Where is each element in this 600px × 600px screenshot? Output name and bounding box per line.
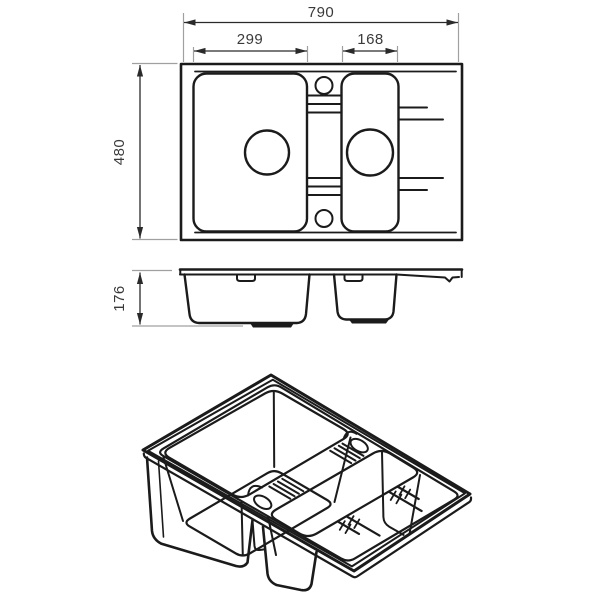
arrow-left-icon: [343, 48, 355, 54]
drawing-canvas: 790 299 168 480 176: [0, 0, 600, 600]
iso-divider-grooves: [269, 444, 363, 499]
tap-hole-back: [316, 77, 333, 94]
iso-drainboard-groove-ticks: [340, 486, 410, 533]
drainboard-grooves: [399, 108, 444, 191]
dim-right-bowl-value: 168: [357, 31, 384, 48]
side-right-bowl-drain-bump: [349, 320, 389, 324]
side-left-bowl-drain-bump: [250, 323, 294, 328]
side-right-bowl: [334, 275, 397, 320]
side-drainboard-edge: [397, 275, 460, 282]
dim-overall-length: 790: [184, 4, 459, 62]
arrow-up-icon: [137, 273, 143, 285]
top-view: [181, 64, 462, 240]
dim-overall-length-value: 790: [308, 4, 335, 21]
arrow-down-icon: [137, 313, 143, 325]
arrow-left-icon: [184, 19, 196, 25]
isometric-view: [143, 375, 471, 590]
iso-big-bowl-shell-edge: [159, 461, 164, 537]
arrow-up-icon: [137, 65, 143, 77]
side-view: [180, 270, 462, 328]
dim-overall-width-value: 480: [111, 139, 128, 166]
dim-depth: 176: [111, 271, 243, 327]
dim-overall-width: 480: [111, 64, 178, 240]
right-bowl-outline: [342, 74, 399, 232]
dim-left-bowl-length: 299: [194, 31, 308, 62]
arrow-right-icon: [447, 19, 459, 25]
arrow-right-icon: [386, 48, 398, 54]
sink-technical-drawing: 790 299 168 480 176: [0, 0, 600, 600]
dim-right-bowl-length: 168: [343, 31, 398, 62]
dim-overall-width-extensions: [132, 64, 178, 240]
top-view-outline: [181, 64, 462, 240]
arrow-right-icon: [296, 48, 308, 54]
arrow-left-icon: [194, 48, 206, 54]
divider-grooves: [308, 96, 342, 196]
tap-hole-front: [316, 210, 333, 227]
dim-depth-value: 176: [111, 285, 128, 312]
left-bowl-drain: [245, 131, 289, 175]
right-bowl-drain: [347, 130, 393, 176]
dim-left-bowl-value: 299: [237, 31, 264, 48]
dim-right-bowl-extensions: [343, 46, 398, 62]
arrow-down-icon: [137, 227, 143, 239]
dim-left-bowl-extensions: [194, 46, 308, 62]
